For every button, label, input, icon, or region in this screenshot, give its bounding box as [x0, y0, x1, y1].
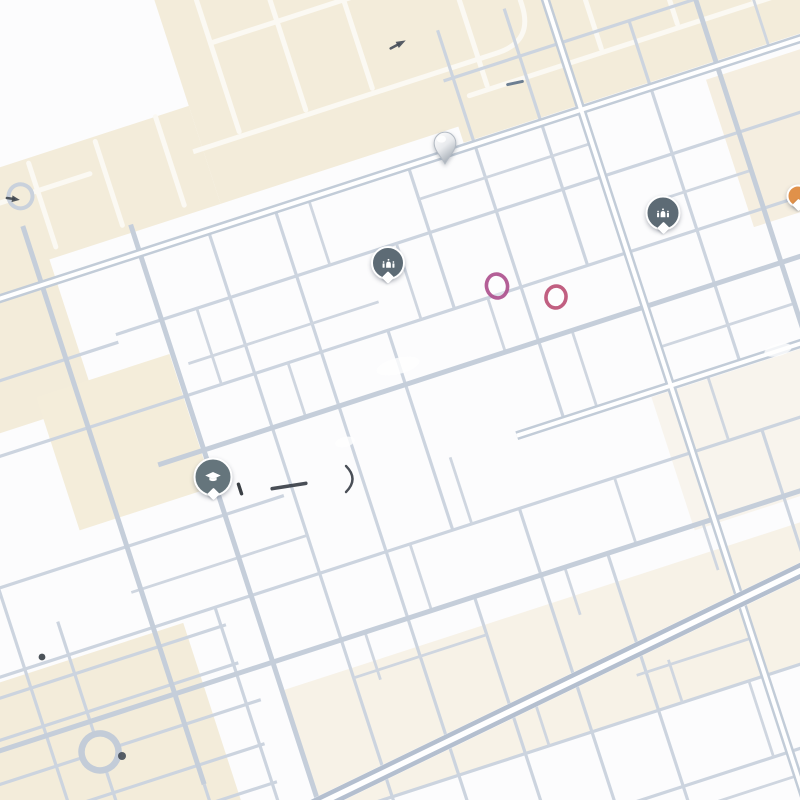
pin-icon [432, 130, 459, 165]
landmark-marker[interactable] [646, 196, 681, 231]
landmark-marker[interactable] [371, 246, 405, 280]
ink-dot [118, 752, 126, 760]
graduation-cap-icon [204, 468, 223, 487]
place-pin[interactable] [432, 130, 459, 170]
ink-dot [39, 654, 46, 661]
ink-circle [544, 284, 568, 309]
road-network [0, 0, 800, 800]
map-canvas[interactable] [0, 0, 800, 800]
school-marker[interactable] [194, 458, 233, 497]
monument-icon [655, 205, 672, 222]
monument-icon [380, 255, 397, 272]
